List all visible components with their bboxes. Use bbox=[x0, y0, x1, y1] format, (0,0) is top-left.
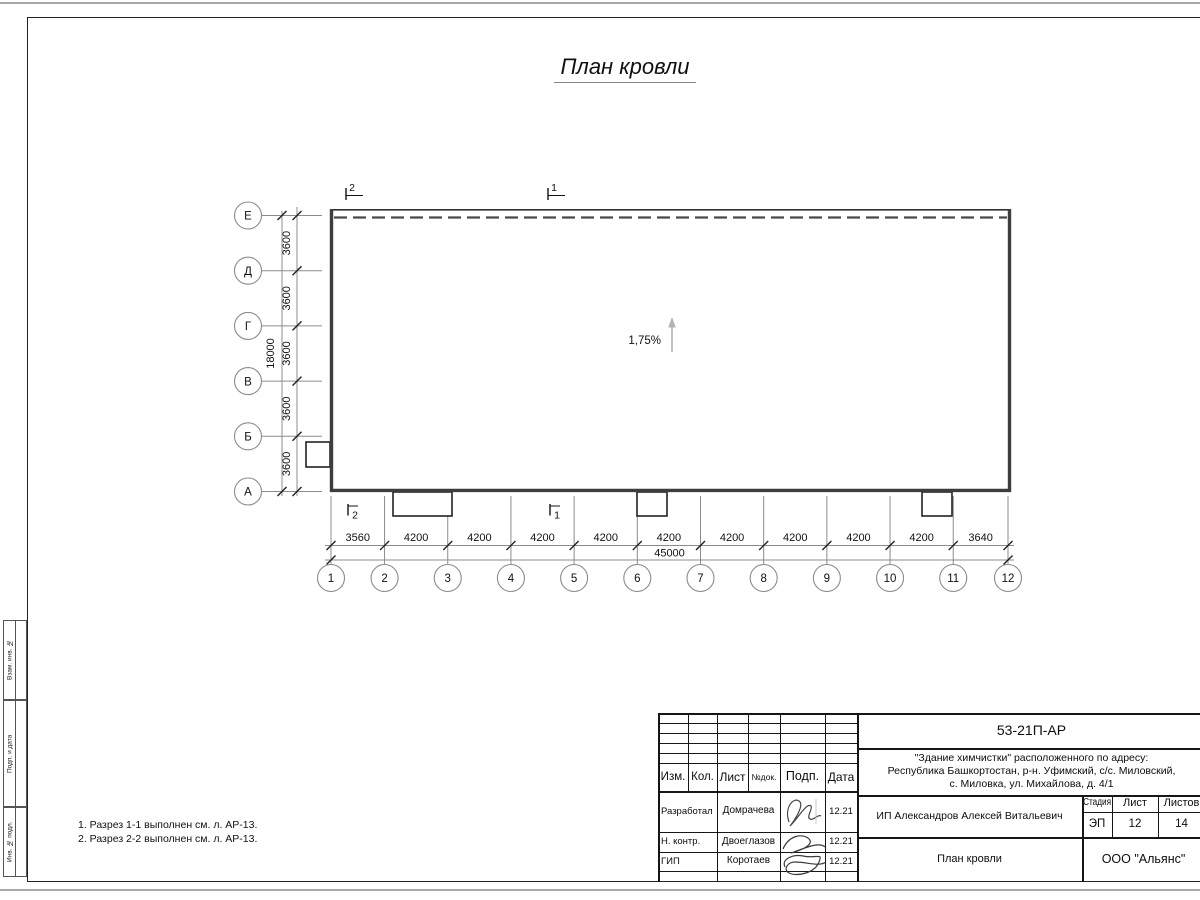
axis-bubble-number-label: 9 bbox=[824, 573, 830, 585]
canopy-outline bbox=[637, 492, 667, 516]
section-mark-label: 1 bbox=[551, 182, 557, 194]
dim-label: 4200 bbox=[909, 532, 933, 544]
dim-label: 3600 bbox=[281, 341, 293, 365]
tb-list-header: Лист bbox=[1112, 796, 1158, 811]
dim-label: 3600 bbox=[281, 452, 293, 476]
axis-bubble-number-label: 8 bbox=[760, 573, 766, 585]
tb-header-podp: Подп. bbox=[780, 764, 825, 790]
drawing-sheet: { "drawing": { "title": "План кровли", "… bbox=[0, 0, 1200, 900]
axis-bubble-number-label: 3 bbox=[445, 573, 451, 585]
sheet-outer-edge-bottom bbox=[0, 889, 1200, 891]
sheet-outer-edge-top bbox=[0, 2, 1200, 4]
tb-doc-number: 53-21П-АР bbox=[859, 714, 1200, 747]
dim-label: 3560 bbox=[346, 532, 370, 544]
dim-label: 4200 bbox=[404, 532, 428, 544]
dim-label: 3600 bbox=[281, 231, 293, 255]
tb-role: Разработал bbox=[658, 791, 717, 832]
section-mark-label: 2 bbox=[352, 510, 358, 522]
frame-column-box: Взам. инв. № bbox=[3, 620, 27, 700]
dim-label: 3600 bbox=[281, 396, 293, 420]
signature-icon bbox=[779, 831, 831, 879]
axis-bubble-number-label: 2 bbox=[381, 573, 387, 585]
dim-label: 4200 bbox=[530, 532, 554, 544]
dim-label: 3640 bbox=[968, 532, 992, 544]
notes: 1. Разрез 1-1 выполнен см. л. АР-13. 2. … bbox=[78, 819, 257, 846]
dim-label: 4200 bbox=[593, 532, 617, 544]
dim-total-label: 45000 bbox=[654, 548, 685, 560]
canopy-outline bbox=[393, 492, 452, 516]
tb-date: 12.21 bbox=[825, 791, 857, 832]
note-line: 2. Разрез 2-2 выполнен см. л. АР-13. bbox=[78, 833, 257, 847]
frame-column-label: Подп. и дата bbox=[5, 701, 15, 806]
frame-column-box: Подп. и дата bbox=[3, 700, 27, 807]
tb-header-izm: Изм. bbox=[658, 764, 688, 790]
section-mark-label: 1 bbox=[554, 510, 560, 522]
frame-column-box: Инв. № подл. bbox=[3, 807, 27, 877]
tb-list-value: 12 bbox=[1112, 812, 1158, 836]
axis-bubble-letter-label: Е bbox=[244, 211, 252, 223]
axis-bubble-letter-label: Г bbox=[245, 321, 252, 333]
canopy-outline bbox=[922, 492, 952, 516]
frame-column-label: Взам. инв. № bbox=[5, 621, 15, 699]
axis-bubble-number-label: 1 bbox=[328, 573, 334, 585]
axis-bubble-number-label: 12 bbox=[1002, 573, 1015, 585]
dim-label: 4200 bbox=[720, 532, 744, 544]
dim-label: 4200 bbox=[657, 532, 681, 544]
tb-company: ООО "Альянс" bbox=[1082, 838, 1200, 881]
axis-bubble-number-label: 7 bbox=[697, 573, 703, 585]
tb-name: Домрачева bbox=[717, 791, 780, 832]
tb-sheet-name: План кровли bbox=[858, 838, 1081, 881]
dim-label: 4200 bbox=[846, 532, 870, 544]
tb-role: Н. контр. bbox=[658, 832, 717, 852]
axis-bubble-letter-label: Б bbox=[244, 432, 252, 444]
tb-project-address: "Здание химчистки" расположенного по адр… bbox=[859, 749, 1200, 794]
frame-column-label: Инв. № подл. bbox=[5, 808, 15, 876]
tb-stage-header: Стадия bbox=[1082, 796, 1112, 811]
canopy-outline bbox=[306, 442, 330, 467]
tb-header-data: Дата bbox=[825, 764, 857, 790]
dim-total-label: 18000 bbox=[265, 338, 277, 369]
axis-bubble-letter-label: В bbox=[244, 376, 252, 388]
tb-header-list: Лист bbox=[717, 764, 748, 790]
axis-bubble-letter-label: Д bbox=[244, 266, 252, 278]
dim-label: 3600 bbox=[281, 286, 293, 310]
roof-slab bbox=[330, 209, 1011, 492]
tb-header-ndok: №док. bbox=[748, 764, 780, 790]
note-line: 1. Разрез 1-1 выполнен см. л. АР-13. bbox=[78, 819, 257, 833]
tb-role: ГИП bbox=[658, 852, 717, 871]
dim-label: 4200 bbox=[467, 532, 491, 544]
tb-name: Двоеглазов bbox=[717, 832, 780, 852]
tb-client: ИП Александров Алексей Витальевич bbox=[858, 796, 1081, 836]
axis-bubble-number-label: 10 bbox=[884, 573, 897, 585]
tb-stage-value: ЭП bbox=[1082, 812, 1112, 836]
axis-bubble-letter-label: А bbox=[244, 487, 252, 499]
tb-name: Коротаев bbox=[717, 852, 780, 871]
axis-bubble-number-label: 5 bbox=[571, 573, 577, 585]
axis-bubble-number-label: 6 bbox=[634, 573, 640, 585]
slope-label: 1,75% bbox=[628, 335, 661, 347]
axis-bubble-number-label: 4 bbox=[508, 573, 515, 585]
dim-label: 4200 bbox=[783, 532, 807, 544]
tb-listov-value: 14 bbox=[1158, 812, 1200, 836]
axis-bubble-number-label: 11 bbox=[947, 573, 959, 585]
roof-plan-drawing: 3600360036003600360018000АБВГДЕ356042004… bbox=[225, 165, 1045, 610]
tb-listov-header: Листов bbox=[1158, 796, 1200, 811]
section-mark-label: 2 bbox=[349, 182, 355, 194]
page-title: План кровли bbox=[495, 54, 755, 80]
signature-icon bbox=[782, 795, 824, 830]
tb-header-kol: Кол. bbox=[688, 764, 717, 790]
